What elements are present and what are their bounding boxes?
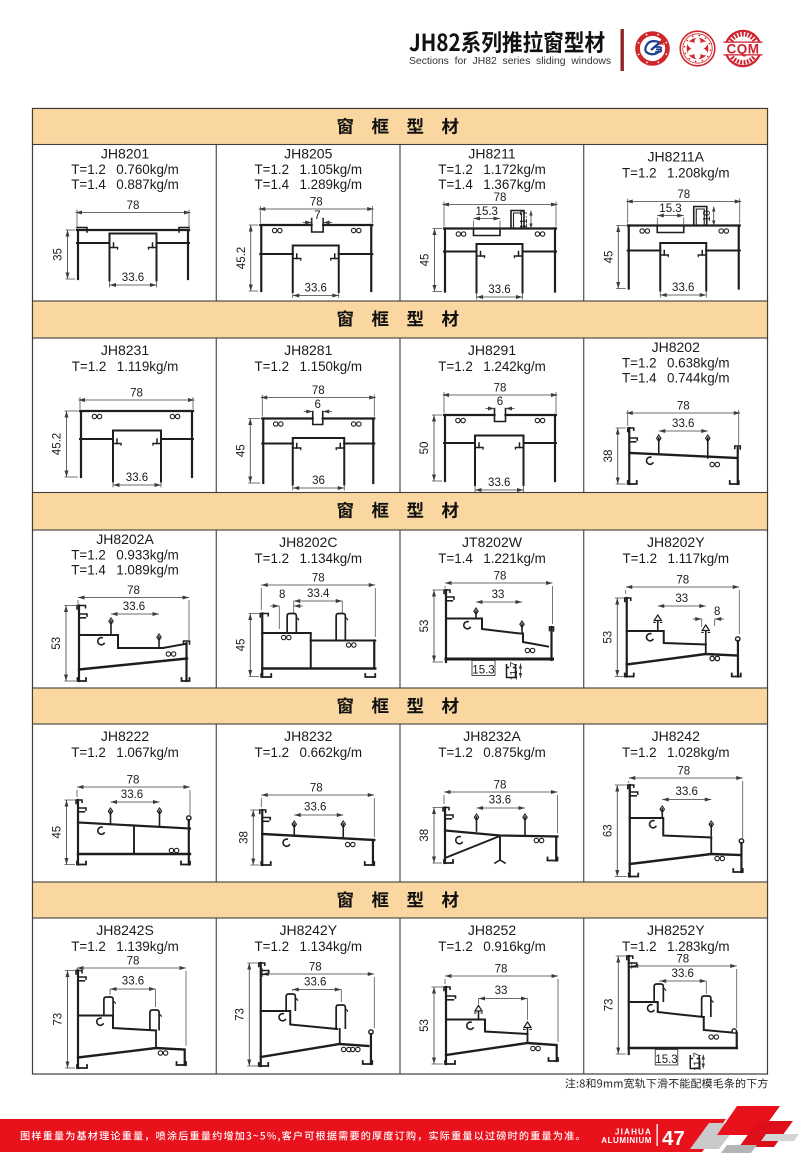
- svg-text:T=1.4 1.089kg/m: T=1.4 1.089kg/m: [71, 563, 179, 578]
- svg-text:JH8202Y: JH8202Y: [647, 534, 705, 550]
- svg-text:33.6: 33.6: [305, 283, 327, 295]
- svg-text:JH8232: JH8232: [284, 728, 332, 744]
- svg-text:JH8202: JH8202: [652, 339, 700, 355]
- svg-text:33.6: 33.6: [304, 802, 326, 814]
- svg-text:33.6: 33.6: [488, 284, 510, 296]
- svg-text:7: 7: [314, 210, 320, 222]
- svg-text:T=1.2 0.875kg/m: T=1.2 0.875kg/m: [438, 745, 546, 760]
- svg-text:33: 33: [492, 589, 505, 601]
- svg-text:T=1.2 1.119kg/m: T=1.2 1.119kg/m: [72, 359, 179, 374]
- svg-text:11.7: 11.7: [692, 1052, 703, 1071]
- svg-text:35: 35: [53, 248, 65, 261]
- svg-text:JT8202W: JT8202W: [462, 534, 523, 550]
- svg-text:JH8202C: JH8202C: [279, 534, 337, 550]
- svg-text:CQM: CQM: [727, 42, 760, 57]
- svg-text:53: 53: [419, 1019, 431, 1032]
- svg-text:T=1.2 0.916kg/m: T=1.2 0.916kg/m: [438, 939, 546, 954]
- svg-text:45: 45: [52, 826, 64, 839]
- svg-text:45.2: 45.2: [52, 433, 64, 455]
- svg-text:T=1.2 1.105kg/m: T=1.2 1.105kg/m: [254, 162, 362, 177]
- svg-text:15.3: 15.3: [659, 203, 681, 215]
- svg-text:JH8222: JH8222: [101, 728, 149, 744]
- svg-text:T=1.2 0.760kg/m: T=1.2 0.760kg/m: [71, 162, 179, 177]
- svg-text:38: 38: [419, 829, 431, 842]
- svg-text:73: 73: [53, 1013, 65, 1026]
- svg-text:53: 53: [602, 631, 614, 644]
- svg-text:JH8252: JH8252: [468, 922, 516, 938]
- svg-text:JH8281: JH8281: [284, 342, 332, 358]
- svg-text:63: 63: [602, 824, 614, 837]
- svg-text:8: 8: [279, 589, 285, 601]
- svg-text:33: 33: [675, 593, 688, 605]
- svg-text:T=1.2 1.150kg/m: T=1.2 1.150kg/m: [254, 359, 362, 374]
- svg-text:78: 78: [494, 571, 507, 583]
- svg-text:78: 78: [495, 964, 508, 976]
- svg-text:33.6: 33.6: [304, 977, 326, 989]
- svg-text:78: 78: [127, 200, 140, 212]
- svg-text:45: 45: [603, 251, 615, 264]
- svg-text:53: 53: [51, 637, 63, 650]
- svg-text:JH8232A: JH8232A: [463, 728, 521, 744]
- svg-text:78: 78: [676, 954, 689, 966]
- svg-text:78: 78: [310, 783, 323, 795]
- svg-text:T=1.4 1.221kg/m: T=1.4 1.221kg/m: [438, 551, 546, 566]
- svg-text:33.4: 33.4: [307, 588, 330, 600]
- svg-text:78: 78: [130, 388, 143, 400]
- svg-text:T=1.2 1.028kg/m: T=1.2 1.028kg/m: [622, 745, 730, 760]
- svg-text:78: 78: [677, 766, 690, 778]
- svg-text:33.6: 33.6: [672, 282, 694, 294]
- svg-text:38: 38: [603, 450, 615, 463]
- svg-text:33.6: 33.6: [488, 477, 510, 489]
- svg-text:50: 50: [419, 442, 431, 455]
- svg-text:15.3: 15.3: [476, 206, 498, 218]
- svg-text:78: 78: [310, 197, 323, 209]
- svg-text:JH8252Y: JH8252Y: [647, 922, 705, 938]
- svg-text:33.6: 33.6: [126, 472, 148, 484]
- svg-text:53: 53: [419, 620, 431, 633]
- svg-text:38: 38: [238, 831, 250, 844]
- svg-text:15.3: 15.3: [655, 1054, 677, 1066]
- svg-text:78: 78: [677, 189, 690, 201]
- svg-text:T=1.4 1.289kg/m: T=1.4 1.289kg/m: [254, 177, 362, 192]
- svg-text:10: 10: [701, 210, 713, 222]
- svg-text:45: 45: [420, 254, 432, 267]
- svg-text:JH8202A: JH8202A: [96, 531, 154, 547]
- svg-text:78: 78: [677, 401, 690, 413]
- svg-text:78: 78: [309, 962, 322, 974]
- svg-text:33.6: 33.6: [122, 272, 144, 284]
- svg-text:T=1.2 0.638kg/m: T=1.2 0.638kg/m: [622, 356, 730, 371]
- svg-text:JH8242: JH8242: [652, 728, 700, 744]
- svg-text:JH8205: JH8205: [284, 146, 332, 162]
- svg-text:33.6: 33.6: [123, 601, 145, 613]
- svg-text:15.3: 15.3: [472, 665, 494, 677]
- svg-text:JH8201: JH8201: [101, 146, 149, 162]
- svg-text:T=1.2 0.662kg/m: T=1.2 0.662kg/m: [254, 745, 362, 760]
- svg-text:JH8211A: JH8211A: [647, 149, 704, 165]
- svg-text:73: 73: [603, 999, 615, 1012]
- svg-text:33.6: 33.6: [672, 968, 694, 980]
- svg-text:T=1.2 1.139kg/m: T=1.2 1.139kg/m: [71, 939, 179, 954]
- svg-text:T=1.2 1.172kg/m: T=1.2 1.172kg/m: [438, 162, 546, 177]
- svg-text:45: 45: [235, 639, 247, 652]
- svg-text:Sections for JH82 series s: Sections for JH82 series sliding windows: [409, 56, 611, 67]
- svg-text:47: 47: [662, 1127, 685, 1150]
- svg-text:33.6: 33.6: [672, 418, 694, 430]
- svg-text:78: 78: [312, 385, 325, 397]
- svg-text:T=1.2 0.933kg/m: T=1.2 0.933kg/m: [71, 548, 179, 563]
- svg-text:T=1.2 1.117kg/m: T=1.2 1.117kg/m: [622, 551, 729, 566]
- svg-text:33.6: 33.6: [489, 795, 511, 807]
- svg-text:78: 78: [494, 192, 507, 204]
- svg-text:8: 8: [714, 606, 720, 618]
- svg-text:JH8231: JH8231: [101, 342, 149, 358]
- svg-text:T=1.4 0.744kg/m: T=1.4 0.744kg/m: [622, 371, 730, 386]
- svg-text:73: 73: [234, 1008, 246, 1021]
- svg-text:33.6: 33.6: [122, 976, 144, 988]
- svg-text:ALUMINIUM: ALUMINIUM: [601, 1136, 652, 1145]
- svg-text:6: 6: [497, 396, 503, 408]
- svg-text:JH8242Y: JH8242Y: [279, 922, 337, 938]
- svg-text:78: 78: [494, 383, 507, 395]
- svg-text:78: 78: [312, 573, 325, 585]
- svg-text:78: 78: [494, 780, 507, 792]
- svg-text:33.6: 33.6: [676, 786, 698, 798]
- svg-text:11.7: 11.7: [509, 661, 520, 680]
- svg-text:T=1.4 1.367kg/m: T=1.4 1.367kg/m: [438, 177, 546, 192]
- svg-text:45.2: 45.2: [236, 247, 248, 269]
- svg-text:78: 78: [127, 956, 140, 968]
- svg-text:T=1.2 1.067kg/m: T=1.2 1.067kg/m: [71, 745, 179, 760]
- svg-text:T=1.2 1.208kg/m: T=1.2 1.208kg/m: [622, 166, 730, 181]
- svg-text:33.6: 33.6: [121, 789, 143, 801]
- svg-text:45: 45: [235, 444, 247, 457]
- svg-text:JH8291: JH8291: [468, 342, 516, 358]
- svg-text:T=1.2 1.283kg/m: T=1.2 1.283kg/m: [622, 939, 730, 954]
- svg-text:T=1.2 1.134kg/m: T=1.2 1.134kg/m: [254, 551, 362, 566]
- svg-text:JH8242S: JH8242S: [96, 922, 154, 938]
- svg-text:6: 6: [315, 399, 321, 411]
- svg-text:11.7: 11.7: [518, 210, 530, 230]
- svg-text:33: 33: [495, 985, 508, 997]
- svg-text:T=1.4 0.887kg/m: T=1.4 0.887kg/m: [71, 177, 179, 192]
- svg-text:T=1.2 1.134kg/m: T=1.2 1.134kg/m: [254, 939, 362, 954]
- svg-text:78: 78: [676, 575, 689, 587]
- svg-text:78: 78: [127, 775, 140, 787]
- svg-text:36: 36: [312, 475, 325, 487]
- svg-text:T=1.2 1.242kg/m: T=1.2 1.242kg/m: [438, 359, 546, 374]
- svg-text:JH8211: JH8211: [468, 146, 515, 162]
- svg-text:78: 78: [127, 585, 140, 597]
